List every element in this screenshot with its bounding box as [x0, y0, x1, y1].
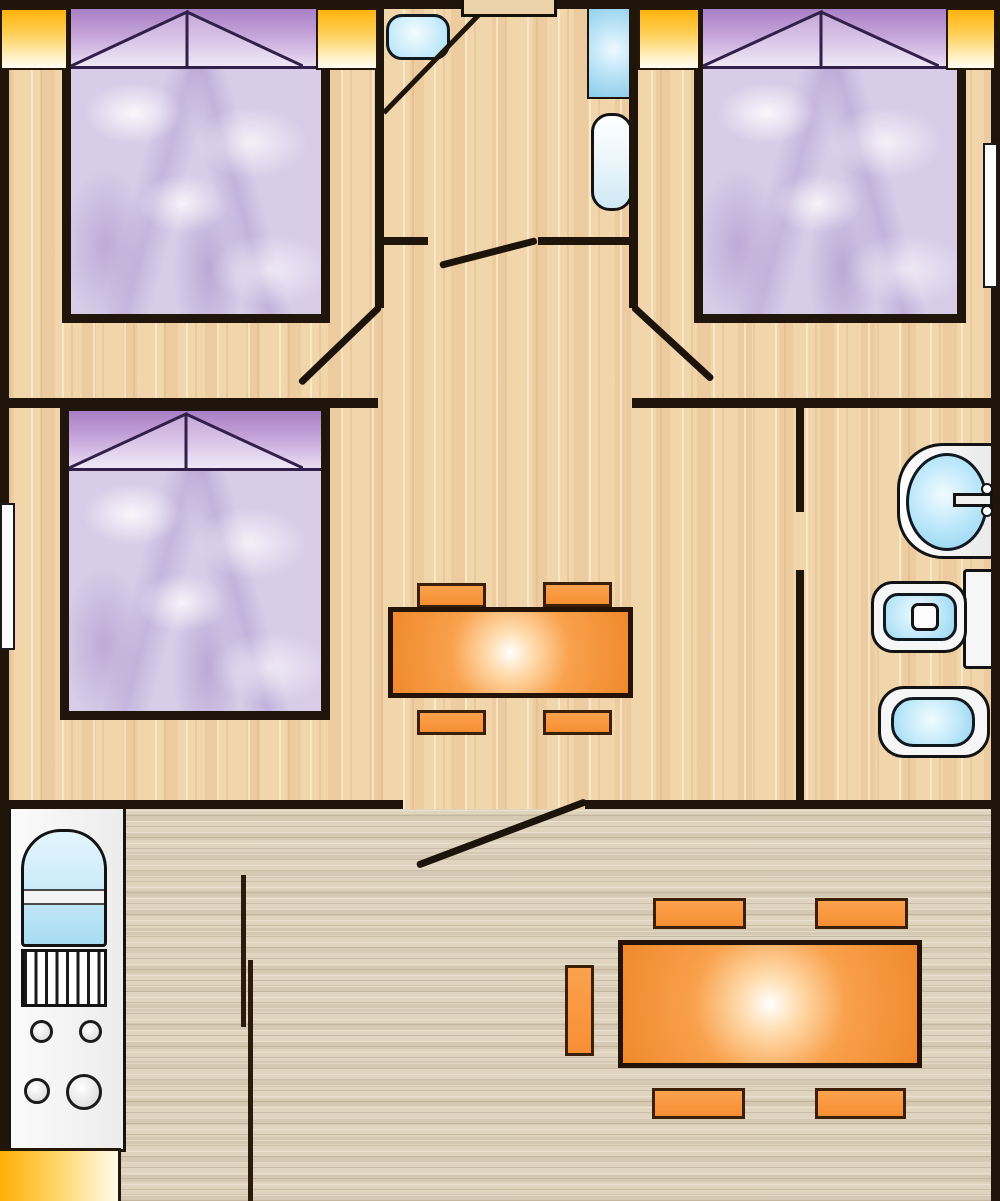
bidet-inner — [891, 697, 975, 747]
bed-top-right — [694, 0, 966, 323]
dining-chair — [417, 583, 486, 608]
water-heater — [591, 113, 633, 211]
pillow-triangles-icon — [703, 9, 939, 66]
bed-top-left-headboard — [71, 9, 321, 66]
window-bed2-left — [638, 8, 700, 70]
kitchen-sink — [21, 829, 107, 947]
living-chair — [815, 898, 908, 929]
window-bed1-right — [316, 8, 378, 70]
wall-mid-left — [0, 398, 378, 408]
bed-middle-left — [60, 402, 330, 720]
burner-small — [79, 1020, 102, 1043]
dining-chair — [417, 710, 486, 735]
bed-top-left — [62, 0, 330, 323]
bed-middle-left-mattress — [69, 468, 321, 711]
kitchen-unit — [8, 806, 126, 1152]
wall-living-right — [585, 800, 994, 809]
window-bed2-right — [946, 8, 996, 70]
living-table — [618, 940, 922, 1068]
kitchen-drainer-grill — [21, 949, 107, 1007]
pillow-triangles-icon — [71, 9, 303, 66]
wall-bathroom-upper — [796, 398, 804, 512]
faucet-knob — [981, 505, 993, 517]
burner-small — [24, 1078, 50, 1104]
window-top-left-corner — [0, 8, 68, 70]
bed-middle-left-headboard — [69, 411, 321, 468]
living-chair — [565, 965, 594, 1056]
wall-bathroom-lower — [796, 570, 804, 802]
kitchen-sink-divider — [24, 889, 104, 905]
entry-door-step — [461, 0, 557, 17]
burner-large — [66, 1074, 102, 1110]
window-bottom-left — [0, 1148, 121, 1201]
living-chair — [652, 1088, 745, 1119]
wall-wc-stub-right — [538, 237, 638, 245]
living-chair — [653, 898, 746, 929]
window-right-wall — [983, 143, 998, 288]
floor-plan — [0, 0, 1000, 1201]
wall-wc-stub-left — [375, 237, 428, 245]
sliding-partition-lower — [248, 960, 253, 1201]
wall-living-left — [0, 800, 403, 809]
toilet-flush — [911, 603, 939, 631]
faucet-knob — [981, 483, 993, 495]
wall-hall-right — [629, 0, 638, 308]
sliding-partition-upper — [241, 875, 246, 1027]
wall-mid-right — [632, 398, 994, 408]
dining-chair — [543, 582, 612, 607]
bed-top-left-mattress — [71, 66, 321, 314]
dining-table — [388, 607, 633, 698]
pillow-triangles-icon — [69, 411, 303, 468]
burner-small — [30, 1020, 53, 1043]
window-left-wall — [0, 503, 15, 650]
bed-top-right-headboard — [703, 9, 957, 66]
dining-chair — [543, 710, 612, 735]
bed-top-right-mattress — [703, 66, 957, 314]
living-chair — [815, 1088, 906, 1119]
